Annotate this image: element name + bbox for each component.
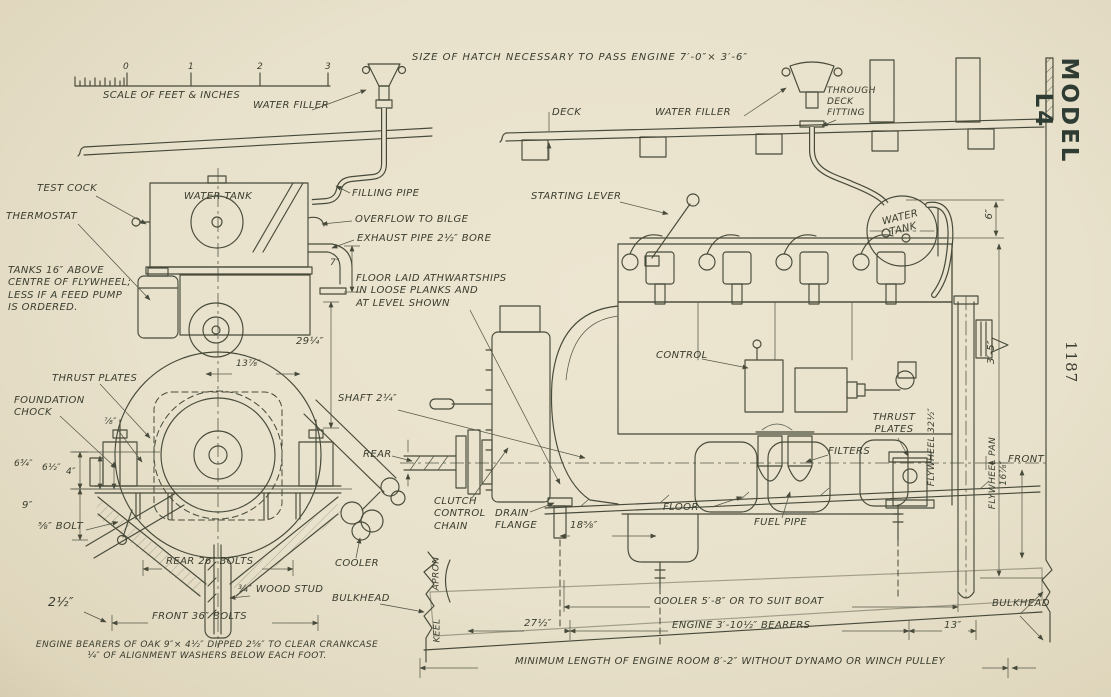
dim-min-length: MINIMUM LENGTH OF ENGINE ROOM 8′-2″ WITH… bbox=[470, 656, 990, 668]
label-shaft: SHAFT 2¼″ bbox=[338, 393, 397, 405]
label-exhaust-pipe: EXHAUST PIPE 2½″ BORE bbox=[357, 233, 491, 245]
label-overflow: OVERFLOW TO BILGE bbox=[355, 214, 468, 226]
page-number: 1187 bbox=[1064, 341, 1080, 377]
label-thrust-plates-front: THRUST PLATES bbox=[52, 373, 137, 385]
dim-flywheel-pan: FLYWHEEL PAN 16⅞″ bbox=[988, 425, 1014, 521]
note-engine-bearers: ENGINE BEARERS OF OAK 9″× 4½″ DIPPED 2⅝″… bbox=[14, 640, 400, 662]
label-floor: FLOOR bbox=[663, 502, 699, 514]
label-thermostat: THERMOSTAT bbox=[6, 211, 77, 223]
dim-drain: 18⅝″ bbox=[570, 520, 598, 532]
label-drain-flange: DRAIN FLANGE bbox=[495, 508, 537, 533]
label-control: CONTROL bbox=[656, 350, 708, 362]
label-water-filler-front: WATER FILLER bbox=[253, 100, 329, 112]
dim-bearers: ENGINE 3′-10½″ BEARERS bbox=[672, 620, 810, 632]
hatch-size-note: SIZE OF HATCH NECESSARY TO PASS ENGINE 7… bbox=[412, 52, 748, 64]
dim-e: 2½″ bbox=[48, 594, 74, 610]
dim-aft: 13″ bbox=[944, 620, 962, 632]
label-filters: FILTERS bbox=[828, 446, 870, 458]
side-bulkhead-right bbox=[1042, 58, 1053, 642]
label-fuel-pipe: FUEL PIPE bbox=[754, 517, 807, 529]
scale-number-3: 3 bbox=[325, 62, 331, 73]
label-filling-pipe: FILLING PIPE bbox=[352, 188, 419, 200]
label-test-cock: TEST COCK bbox=[37, 183, 97, 195]
label-water-tank-front: WATER TANK bbox=[170, 191, 266, 203]
dim-exhaust-height: 7″ bbox=[330, 258, 340, 269]
label-keel: KEEL bbox=[433, 612, 444, 650]
scale-bar-drawing bbox=[75, 73, 330, 86]
scale-number-1: 1 bbox=[188, 62, 194, 73]
label-rear-shaft: REAR bbox=[363, 449, 392, 461]
label-wood-stud: ¾″ WOOD STUD bbox=[238, 584, 323, 596]
dim-c: 4″ bbox=[66, 467, 76, 478]
label-bulkhead-right: BULKHEAD bbox=[992, 598, 1050, 610]
dim-tank-offset: 6″ bbox=[984, 203, 996, 225]
side-view-drawing bbox=[400, 58, 1053, 662]
label-through-deck-fitting: THROUGH DECK FITTING bbox=[827, 86, 876, 119]
label-foundation-chock: FOUNDATION CHOCK bbox=[14, 395, 85, 420]
dim-flywheel-hub: 13⅞″ bbox=[236, 359, 261, 370]
dim-cooler: COOLER 5′-8″ OR TO SUIT BOAT bbox=[654, 596, 823, 608]
scale-caption: SCALE OF FEET & INCHES bbox=[103, 90, 240, 102]
label-starting-lever: STARTING LEVER bbox=[531, 191, 621, 203]
dim-plate: ⅞″ bbox=[104, 417, 117, 428]
scale-number-0: 0 bbox=[123, 62, 129, 73]
label-cooler-front: COOLER bbox=[335, 558, 379, 570]
dim-overall-height: 29¼″ bbox=[296, 336, 324, 348]
dim-a: 6¾″ bbox=[14, 459, 33, 470]
label-water-filler-side: WATER FILLER bbox=[655, 107, 731, 119]
label-deck: DECK bbox=[552, 107, 581, 119]
label-thrust-plates-side: THRUST PLATES bbox=[868, 412, 920, 437]
engine-drawing bbox=[0, 0, 1111, 697]
label-rear-bolts: REAR 26″ BOLTS bbox=[166, 556, 254, 568]
front-water-filler bbox=[312, 64, 406, 202]
dim-flywheel: FLYWHEEL 32½″ bbox=[927, 392, 939, 502]
note-tanks: TANKS 16″ ABOVE CENTRE OF FLYWHEEL; LESS… bbox=[8, 265, 131, 315]
note-floor: FLOOR LAID ATHWARTSHIPS IN LOOSE PLANKS … bbox=[356, 273, 507, 310]
label-bolt: ⅝″ BOLT bbox=[38, 521, 83, 533]
label-bulkhead-left: BULKHEAD bbox=[332, 593, 390, 605]
scale-number-2: 2 bbox=[257, 62, 263, 73]
label-clutch-chain: CLUTCH CONTROL CHAIN bbox=[434, 496, 486, 533]
model-title: MODEL L4 bbox=[1056, 36, 1082, 186]
dim-d: 9″ bbox=[22, 500, 33, 512]
dim-front-offset: 27½″ bbox=[524, 618, 552, 630]
label-apron: APRON bbox=[432, 551, 443, 597]
front-foundation bbox=[86, 420, 342, 638]
dim-b: 6½″ bbox=[42, 463, 61, 474]
dim-overall-depth: 3′-5″ bbox=[986, 330, 998, 374]
side-deck bbox=[500, 58, 1044, 160]
blueprint-page: 0 1 2 3 SCALE OF FEET & INCHES SIZE OF H… bbox=[0, 0, 1111, 697]
front-deck bbox=[78, 128, 432, 156]
label-front-bolts: FRONT 36″ BOLTS bbox=[152, 611, 247, 623]
